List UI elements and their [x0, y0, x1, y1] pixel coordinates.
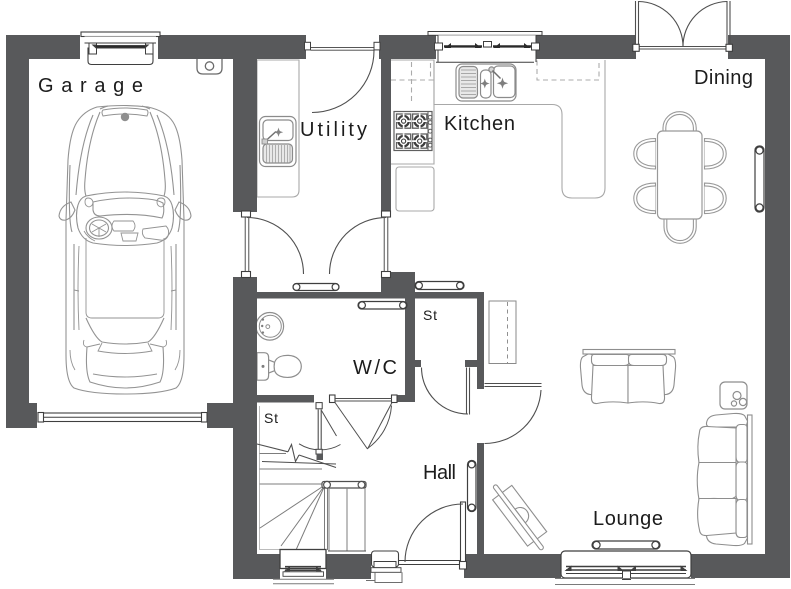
svg-text:Hall: Hall — [423, 462, 456, 484]
svg-text:Utility: Utility — [300, 119, 367, 141]
svg-text:Kitchen: Kitchen — [444, 113, 515, 135]
svg-text:Dining: Dining — [694, 67, 753, 89]
svg-text:St: St — [264, 410, 278, 426]
svg-text:Lounge: Lounge — [593, 508, 663, 530]
svg-text:St: St — [423, 307, 437, 323]
svg-text:W/C: W/C — [353, 357, 397, 379]
